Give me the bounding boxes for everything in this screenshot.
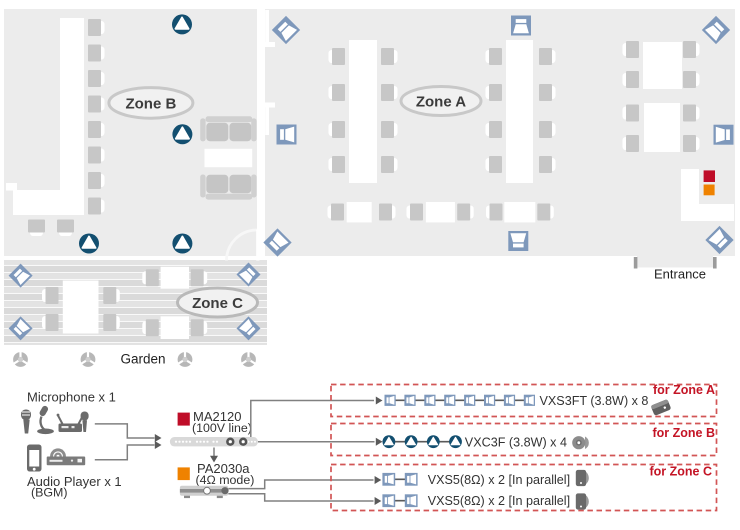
svg-text:(4Ω mode): (4Ω mode) bbox=[196, 473, 255, 487]
svg-text:VXS5(8Ω) x 2 [In parallel]: VXS5(8Ω) x 2 [In parallel] bbox=[428, 473, 570, 487]
svg-text:for Zone C: for Zone C bbox=[650, 465, 713, 479]
svg-text:Entrance: Entrance bbox=[654, 267, 706, 282]
svg-text:VXS3FT (3.8W) x 8: VXS3FT (3.8W) x 8 bbox=[540, 394, 649, 408]
svg-text:VXC3F (3.8W) x 4: VXC3F (3.8W) x 4 bbox=[465, 435, 567, 449]
svg-text:VXS5(8Ω) x 2 [In parallel]: VXS5(8Ω) x 2 [In parallel] bbox=[428, 494, 570, 508]
svg-text:(BGM): (BGM) bbox=[31, 486, 67, 500]
svg-text:Zone B: Zone B bbox=[125, 95, 176, 112]
svg-text:for Zone B: for Zone B bbox=[653, 426, 716, 440]
svg-text:Microphone x 1: Microphone x 1 bbox=[27, 390, 116, 405]
svg-text:Garden: Garden bbox=[121, 352, 166, 367]
svg-text:(100V line): (100V line) bbox=[192, 421, 252, 435]
svg-text:Zone A: Zone A bbox=[416, 93, 466, 110]
svg-text:Zone C: Zone C bbox=[192, 295, 243, 312]
svg-text:for Zone A: for Zone A bbox=[653, 383, 715, 397]
